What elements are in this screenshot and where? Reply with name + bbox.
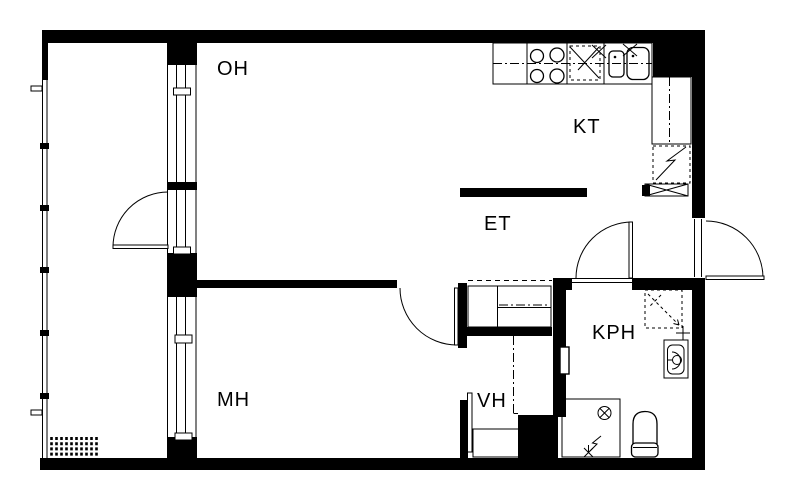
door-leaf — [629, 222, 633, 278]
toilet-icon — [632, 412, 659, 458]
door-swing — [400, 288, 457, 345]
kph-wall-niche — [560, 347, 569, 374]
floor-plan-drawing — [0, 0, 800, 502]
wall-kph-top-right — [632, 278, 692, 290]
kitchen-low-unit-icon — [645, 184, 688, 196]
washbasin-icon — [664, 340, 688, 378]
room-label-mh: MH — [217, 390, 250, 410]
wall-bedroom — [197, 280, 397, 288]
stove-icon — [531, 48, 565, 83]
band-mullion-bar — [167, 182, 197, 190]
wall-closet-south — [462, 327, 552, 336]
entry-door — [695, 219, 765, 280]
dishwasher-icon — [570, 45, 606, 80]
floor-drain-icon — [598, 407, 611, 420]
rail-tick-lower — [31, 410, 42, 415]
wall-et-bar — [460, 188, 587, 197]
room-label-oh: OH — [217, 59, 249, 79]
bedroom-door — [400, 288, 458, 345]
duct-shaft — [518, 415, 558, 458]
bathroom-door — [572, 222, 633, 283]
wall-right-lower — [692, 278, 705, 470]
vh-cabinet — [473, 429, 519, 457]
balcony-door — [113, 192, 168, 249]
tall-cabinet-icon — [652, 77, 691, 144]
balcony-hatch — [52, 437, 97, 457]
door-leaf — [455, 288, 459, 345]
band-block-mid — [167, 253, 197, 297]
shower-icon — [645, 290, 682, 328]
wall-kph-top-left — [553, 278, 572, 290]
wall-bottom — [40, 458, 705, 470]
door-leaf — [706, 276, 764, 280]
wall-top — [48, 30, 705, 43]
wall-right-upper — [692, 43, 705, 218]
rail-tick-upper — [31, 86, 42, 91]
hand-shower-icon — [584, 436, 601, 457]
wall-vh-west-upper — [458, 283, 467, 348]
door-swing — [113, 192, 168, 247]
balcony-rail — [31, 78, 49, 458]
wall-vh-west-lower — [460, 400, 468, 458]
room-label-kt: KT — [573, 117, 601, 137]
door-swing — [706, 221, 763, 278]
fridge-icon — [653, 146, 690, 183]
floor-plan: OH KT ET MH VH KPH — [0, 0, 800, 502]
room-label-vh: VH — [477, 391, 507, 411]
vh-door-leaf — [468, 393, 473, 452]
door-swing — [576, 222, 632, 278]
room-label-kph: KPH — [592, 323, 636, 343]
wall-kitchen-stub — [642, 185, 650, 196]
sink-icon — [604, 43, 652, 84]
rail-top-solid — [42, 30, 48, 80]
door-leaf — [113, 245, 168, 249]
band-block-top — [167, 43, 197, 65]
walls — [40, 30, 705, 470]
wardrobe-icon — [468, 286, 551, 327]
washing-machine-space-icon — [562, 399, 620, 457]
room-label-et: ET — [484, 214, 512, 234]
